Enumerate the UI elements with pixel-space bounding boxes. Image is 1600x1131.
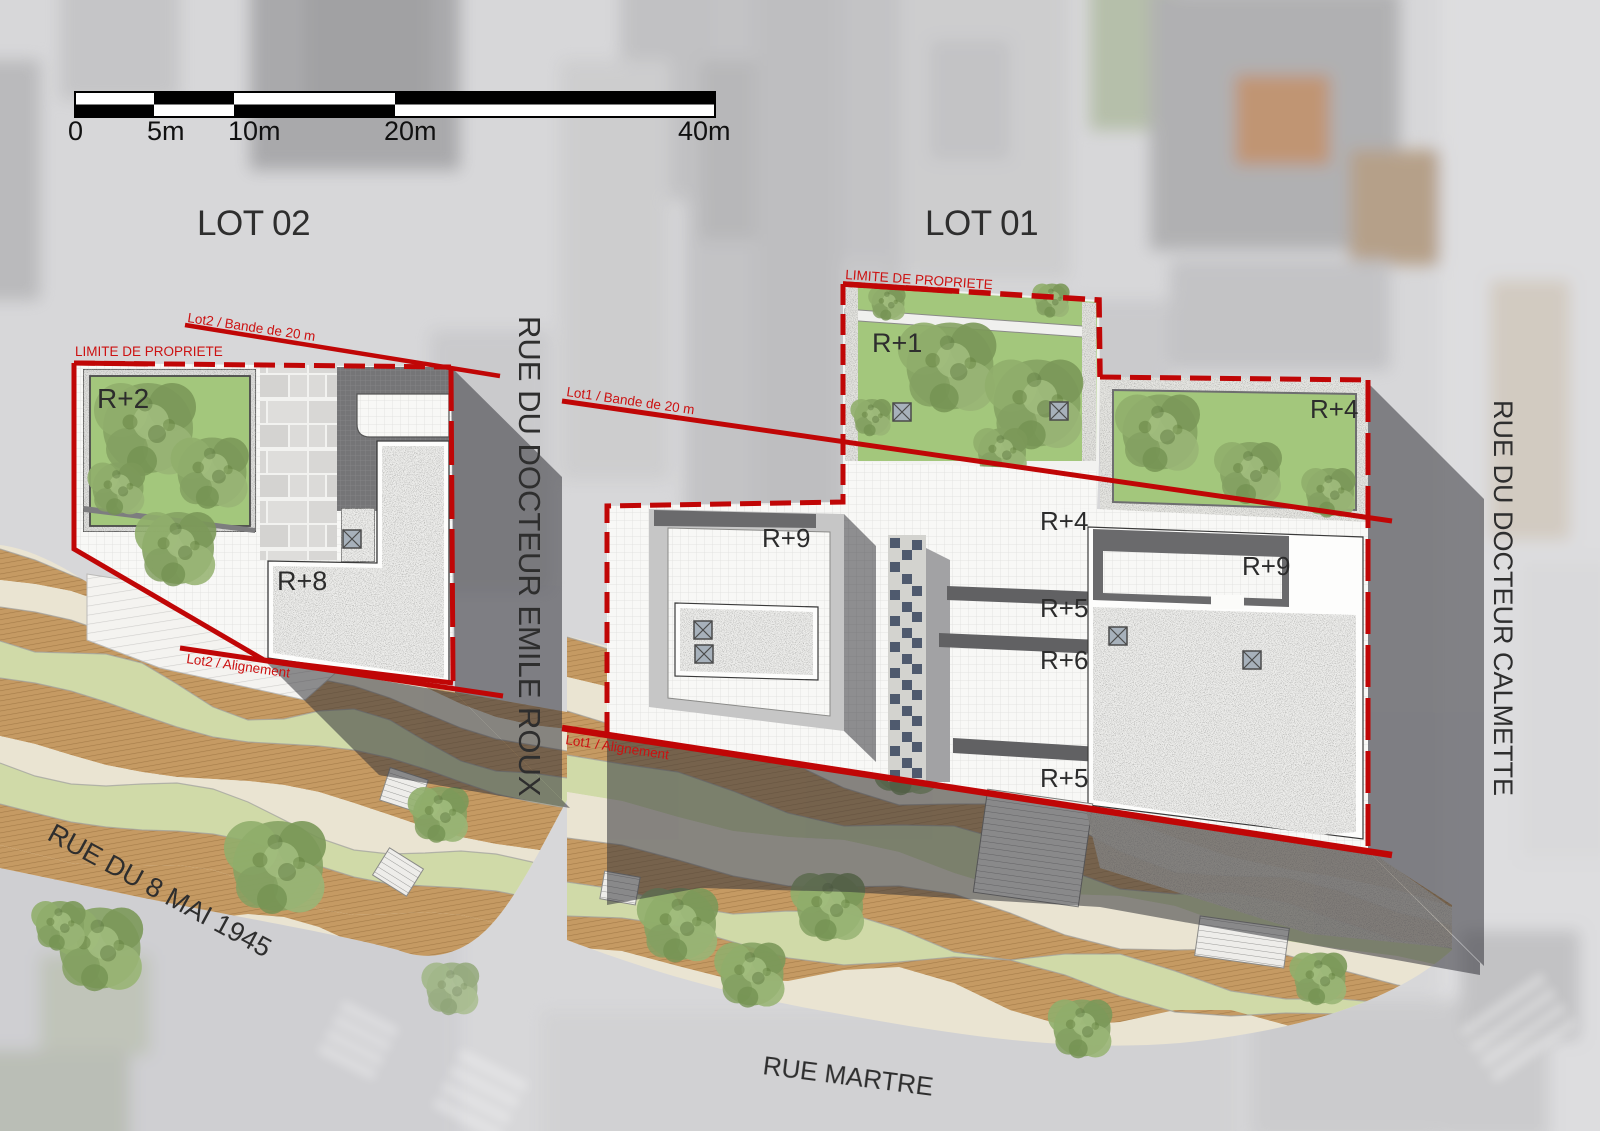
svg-text:R+9: R+9 [762,523,810,553]
svg-text:R+1: R+1 [872,328,922,358]
svg-text:10m: 10m [228,116,281,146]
svg-text:R+2: R+2 [97,383,149,414]
svg-text:LOT 01: LOT 01 [925,204,1038,243]
svg-text:0: 0 [68,116,83,146]
svg-text:LIMITE DE PROPRIETE: LIMITE DE PROPRIETE [75,344,223,359]
svg-text:R+4: R+4 [1040,506,1088,536]
svg-text:R+5: R+5 [1040,593,1088,623]
svg-text:RUE DU DOCTEUR CALMETTE: RUE DU DOCTEUR CALMETTE [1488,400,1518,796]
svg-text:20m: 20m [384,116,437,146]
svg-text:40m: 40m [678,116,731,146]
svg-text:RUE DU DOCTEUR EMILE ROUX: RUE DU DOCTEUR EMILE ROUX [512,316,547,797]
svg-text:R+8: R+8 [277,566,327,596]
svg-text:LOT 02: LOT 02 [197,204,310,243]
svg-text:R+5: R+5 [1040,763,1088,793]
svg-text:5m: 5m [147,116,185,146]
svg-text:R+9: R+9 [1242,551,1290,581]
svg-text:R+4: R+4 [1310,394,1358,424]
svg-text:R+6: R+6 [1040,645,1088,675]
